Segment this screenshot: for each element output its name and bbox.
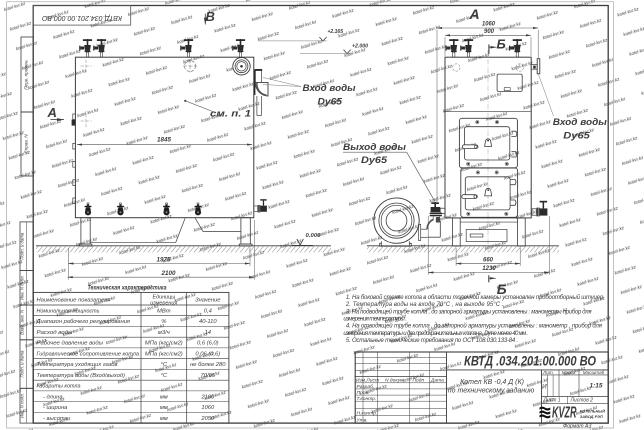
svg-text:м3/ч: м3/ч — [158, 330, 170, 336]
svg-text:И: И — [542, 384, 547, 391]
svg-text:Лист 1: Лист 1 — [543, 398, 561, 404]
svg-text:Н.контр.: Н.контр. — [357, 411, 378, 417]
svg-text:Масштаб: Масштаб — [583, 370, 605, 375]
svg-text:Формат А3: Формат А3 — [563, 423, 591, 429]
svg-text:мм: мм — [160, 405, 168, 411]
svg-text:Рабочее давление воды: Рабочее давление воды — [37, 341, 104, 347]
svg-text:А: А — [47, 105, 57, 120]
svg-text:Т.контр.: Т.контр. — [357, 396, 377, 402]
svg-text:В: В — [206, 9, 215, 24]
svg-text:КВТД.034.201.00.000 ВО: КВТД.034.201.00.000 ВО — [42, 14, 122, 23]
svg-text:Лит.: Лит. — [542, 370, 554, 375]
svg-text:Справ. N: Справ. N — [24, 134, 29, 154]
svg-text:Б: Б — [497, 36, 506, 51]
svg-text:МПа (кгс/см2): МПа (кгс/см2) — [145, 351, 183, 357]
svg-text:0,4: 0,4 — [204, 309, 212, 315]
svg-text:3. На подводящей трубе котла: 3. На подводящей трубе котла , до запорн… — [346, 308, 592, 315]
svg-text:900: 900 — [484, 28, 494, 35]
svg-text:70/95: 70/95 — [201, 373, 216, 379]
svg-text:Dy65: Dy65 — [318, 97, 343, 108]
svg-text:Температура уходящих газов: Температура уходящих газов — [37, 362, 118, 368]
svg-text:1975: 1975 — [157, 256, 171, 263]
svg-text:2100: 2100 — [161, 270, 176, 277]
svg-text:Температура воды (Вход/выход): Температура воды (Вход/выход) — [37, 373, 126, 379]
svg-text:Пров.: Пров. — [357, 390, 370, 396]
svg-text:А: А — [469, 6, 480, 22]
svg-text:см. п. 1: см. п. 1 — [210, 109, 251, 120]
svg-text:по техническому заданию: по техническому заданию — [448, 387, 535, 395]
svg-text:1060: 1060 — [482, 21, 495, 28]
svg-text:- ширина: - ширина — [37, 405, 69, 411]
svg-text:МПа (кгс/см2): МПа (кгс/см2) — [145, 341, 183, 347]
svg-text:Инв. N дубл.: Инв. N дубл. — [20, 275, 25, 300]
svg-text:Выход воды: Выход воды — [343, 142, 406, 153]
svg-text:2100: 2100 — [200, 394, 215, 400]
svg-text:Инв. N подл.: Инв. N подл. — [20, 393, 25, 418]
svg-text:Утв.: Утв. — [357, 418, 368, 424]
svg-text:КОТЕЛЬНЫЙ: КОТЕЛЬНЫЙ — [580, 408, 606, 413]
svg-text:Дата: Дата — [430, 377, 444, 383]
svg-text:N докум: N докум — [385, 377, 404, 383]
svg-text:измерения температуры .: измерения температуры . — [343, 317, 407, 323]
svg-text:Dy65: Dy65 — [361, 155, 388, 166]
svg-text:измерения: измерения — [150, 300, 177, 306]
svg-text:измерения температуры и два пр: измерения температуры и два предохраните… — [343, 331, 528, 337]
svg-text:МВт: МВт — [157, 309, 171, 315]
svg-text:0,6 (6,0): 0,6 (6,0) — [197, 341, 219, 347]
svg-text:Габариты котла: Габариты котла — [37, 384, 82, 390]
svg-text:2. Температура воды на входе: 2. Температура воды на входе 70°С , на в… — [345, 302, 504, 308]
svg-text:Номинальная мощность: Номинальная мощность — [37, 309, 100, 315]
svg-text:Техническая характеристика: Техническая характеристика — [88, 285, 167, 292]
svg-text:Гидравлическое сопротивление к: Гидравлическое сопротивление котла — [37, 351, 140, 357]
svg-text:Вход воды: Вход воды — [303, 83, 356, 94]
svg-text:0,06 (0,6): 0,06 (0,6) — [195, 351, 220, 357]
svg-text:Dy65: Dy65 — [563, 131, 590, 142]
svg-text:не более 280: не более 280 — [190, 362, 226, 368]
svg-text:- высота: - высота — [37, 416, 69, 422]
svg-text:1845: 1845 — [157, 137, 171, 144]
svg-text:Расход воды: Расход воды — [37, 330, 74, 336]
svg-text:Перв. примен.: Перв. примен. — [24, 59, 29, 90]
svg-text:40-110: 40-110 — [199, 319, 217, 325]
svg-text:1:15: 1:15 — [589, 383, 602, 390]
svg-text:Подп: Подп — [413, 377, 425, 383]
svg-text:Котел КВ -0,4 Д (К): Котел КВ -0,4 Д (К) — [460, 379, 524, 386]
svg-text:Изм.Лист: Изм.Лист — [356, 377, 379, 383]
svg-text:5. Остальные технические треб: 5. Остальные технические требования по О… — [346, 338, 518, 344]
svg-text:Листов 2: Листов 2 — [570, 398, 594, 404]
svg-text:%: % — [161, 319, 166, 325]
svg-text:Масса: Масса — [562, 370, 576, 375]
svg-text:Диапазон рабочего регулировани: Диапазон рабочего регулирования — [36, 319, 130, 325]
svg-text:+2.165: +2.165 — [328, 29, 344, 35]
svg-text:°С: °С — [161, 362, 168, 368]
svg-text:1. На боковой стенке котла в: 1. На боковой стенке котла в области топ… — [346, 294, 604, 301]
svg-text:Подп. и дата: Подп. и дата — [20, 232, 25, 260]
svg-text:мм: мм — [160, 416, 168, 422]
svg-text:KVZR: KVZR — [552, 405, 577, 422]
svg-text:ЗАВОД РЭП: ЗАВОД РЭП — [580, 414, 603, 419]
svg-text:4. На отводящей трубе котла ,: 4. На отводящей трубе котла , до запорно… — [346, 323, 603, 330]
svg-text:Подп. и дата: Подп. и дата — [20, 350, 25, 378]
svg-text:КВТД .034.201.00.000 ВО: КВТД .034.201.00.000 ВО — [464, 353, 596, 368]
svg-text:мм: мм — [160, 394, 168, 400]
svg-text:°С: °С — [161, 373, 168, 379]
svg-text:0.000: 0.000 — [306, 233, 322, 239]
svg-text:1060: 1060 — [201, 405, 215, 411]
svg-text:14: 14 — [205, 330, 211, 336]
svg-text:Вход воды: Вход воды — [553, 117, 607, 128]
svg-text:+2.000: +2.000 — [352, 43, 369, 49]
svg-text:Наименование показателя: Наименование показателя — [37, 298, 111, 304]
svg-text:Взам. инв. N: Взам. инв. N — [20, 309, 25, 335]
svg-text:1230: 1230 — [482, 265, 496, 272]
svg-text:660: 660 — [483, 256, 493, 263]
svg-text:- длина: - длина — [37, 394, 64, 400]
svg-text:2050: 2050 — [200, 416, 215, 422]
svg-text:Разраб.: Разраб. — [357, 384, 375, 390]
svg-text:Значение: Значение — [195, 298, 221, 304]
